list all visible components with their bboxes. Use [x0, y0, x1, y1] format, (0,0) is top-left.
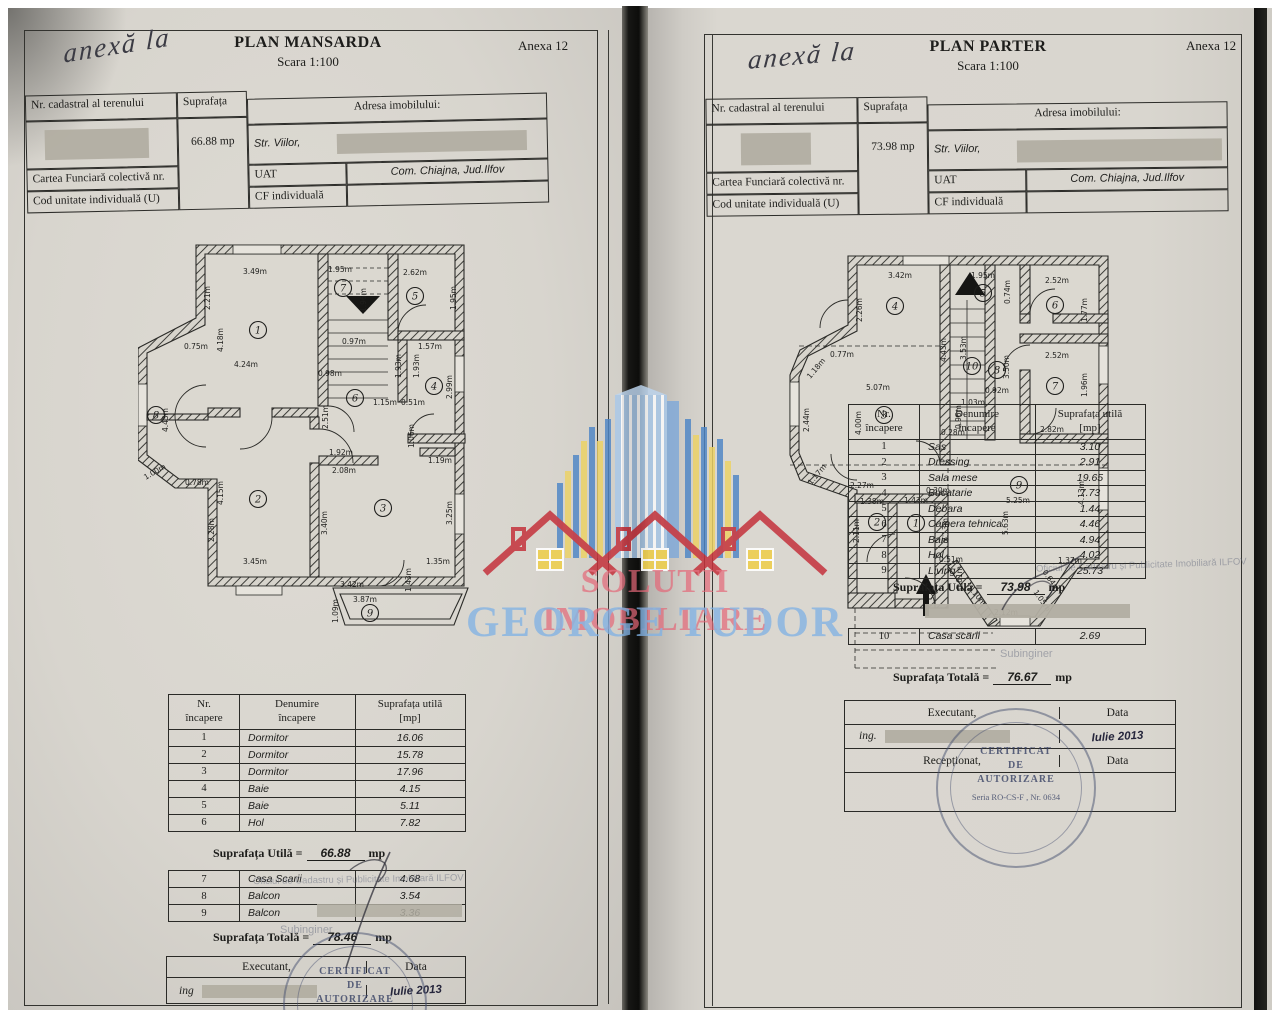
- dimension-label: 2.28m: [207, 518, 216, 542]
- page-title: PLAN MANSARDA: [168, 34, 448, 52]
- photo-seam: [622, 6, 648, 1010]
- table-row: 1Dormitor16.06: [169, 730, 465, 747]
- dimension-label: 4.43m: [939, 338, 948, 362]
- dimension-label: 0.77m: [830, 350, 854, 359]
- dimension-label: 1.93m: [394, 354, 403, 378]
- dimension-label: 1.77m: [1080, 298, 1089, 322]
- svg-text:4: 4: [891, 302, 898, 313]
- svg-text:8: 8: [994, 366, 1000, 377]
- dimension-label: 2.51m: [321, 405, 330, 429]
- cadastral-label: Nr. cadastral al terenului: [705, 97, 857, 125]
- dimension-label: 1.43m: [404, 568, 413, 592]
- svg-text:5: 5: [980, 289, 986, 300]
- dimension-label: 2.52m: [1045, 276, 1069, 285]
- dimension-label: 1.15m: [373, 398, 397, 407]
- adresa-value: Str. Viilor,: [928, 127, 1228, 170]
- page-parter: anexă la PLAN PARTER Scara 1:100 Anexa 1…: [648, 8, 1272, 1010]
- floor-plan-mansarda: 3.49m1.95m2.62m2.21m1.96m1.95m4.18m0.75m…: [138, 238, 478, 656]
- adresa-value: Str. Viilor,: [247, 119, 548, 165]
- adresa-label: Adresa imobilului:: [927, 101, 1227, 130]
- room-areas-table: Nr. încapere Denumire încapere Suprafața…: [168, 694, 466, 832]
- authorization-stamp: CERTIFICAT DE AUTORIZARE Seria RO-CS-F ,…: [936, 708, 1096, 868]
- dimension-label: 1.95m: [328, 265, 352, 274]
- dimension-label: 1.06m: [407, 424, 416, 448]
- dimension-label: 0.75m: [184, 342, 208, 351]
- table-row: 2Dormitor15.78: [169, 747, 465, 764]
- dimension-label: 1.95m: [449, 286, 458, 310]
- annex-label: Anexa 12: [518, 38, 568, 54]
- cf-colectiva-label: Cartea Funciară colectivă nr.: [706, 171, 858, 195]
- dimension-label: 3.42m: [888, 271, 912, 280]
- room-areas-table: Nr. încapere Denumire încapere Suprafața…: [848, 404, 1146, 579]
- dimension-label: 3.87m: [353, 595, 377, 604]
- dimension-label: 0.78m: [185, 478, 209, 487]
- dimension-label: 2.52m: [1045, 351, 1069, 360]
- table-row: 6Camera tehnica4.46: [849, 517, 1145, 533]
- table-row: 5Debara1.44: [849, 502, 1145, 518]
- suprafata-label: Suprafața: [177, 91, 248, 118]
- page-border-inner: [608, 30, 609, 1004]
- photo-edge-shadow: [1254, 8, 1267, 1010]
- dimension-label: 3.49m: [243, 267, 267, 276]
- suprafata-label: Suprafața: [857, 96, 927, 123]
- suprafata-utila-line: Suprafața Utilă =73.98mp: [893, 580, 1065, 595]
- scanned-floorplan-photo: anexă la PLAN MANSARDA Scara 1:100 Anexa…: [0, 0, 1280, 1024]
- table-row: 4Bucatarie7.73: [849, 486, 1145, 502]
- dimension-label: 2.26m: [855, 298, 864, 322]
- page-scale: Scara 1:100: [168, 54, 448, 70]
- dimension-label: 1.93m: [412, 354, 421, 378]
- cadastral-label: Nr. cadastral al terenului: [25, 92, 178, 121]
- room-rows: 1Dormitor16.062Dormitor15.783Dormitor17.…: [169, 730, 465, 831]
- page-title: PLAN PARTER: [848, 38, 1128, 56]
- dimension-label: 2.21m: [203, 286, 212, 310]
- table-row: 1Sas3.10: [849, 440, 1145, 456]
- dimension-label: 5.07m: [866, 383, 890, 392]
- dimension-label: 1.57m: [418, 342, 442, 351]
- svg-text:10: 10: [966, 362, 979, 373]
- table-row: 2Dressing2.91: [849, 455, 1145, 471]
- dimension-label: 3.25m: [445, 501, 454, 525]
- room-number: 9: [362, 605, 379, 622]
- suprafata-totala-line: Suprafața Totală =76.67mp: [893, 670, 1072, 685]
- table-row: 4Baie4.15: [169, 781, 465, 798]
- dimension-label: 0.51m: [401, 398, 425, 407]
- room-rows: 1Sas3.102Dressing2.913Sala mese19.654Buc…: [849, 440, 1145, 579]
- table-row: 7Baie4.94: [849, 533, 1145, 549]
- faint-subinginer: Subinginer: [1000, 648, 1053, 660]
- table-row: 10Casa scarii2.69: [849, 629, 1145, 644]
- table-row: 8Balcon3.54: [169, 888, 465, 905]
- cadastral-value-redacted: [706, 123, 858, 173]
- table-row: 3Sala mese19.65: [849, 471, 1145, 487]
- suprafata-utila-line: Suprafața Utilă =66.88mp: [213, 846, 385, 861]
- svg-text:6: 6: [352, 394, 359, 405]
- table-row: 5Baie5.11: [169, 798, 465, 815]
- dimension-label: 1.09m: [331, 599, 340, 623]
- cf-individuala-label: CF individuală: [928, 191, 1026, 214]
- dimension-label: 4.18m: [216, 328, 225, 352]
- annex-label: Anexa 12: [1186, 38, 1236, 54]
- svg-text:8: 8: [153, 411, 159, 422]
- dimension-label: 3.45m: [243, 557, 267, 566]
- dimension-label: 0.74m: [1003, 280, 1012, 304]
- dimension-label: 2.44m: [802, 408, 811, 432]
- cf-colectiva-label: Cartea Funciară colectivă nr.: [26, 166, 178, 191]
- property-info-table: Nr. cadastral al terenului Cartea Funcia…: [25, 85, 549, 214]
- dimension-label: 3.42m: [340, 580, 364, 589]
- cf-individuala-value: [347, 181, 549, 207]
- dimension-label: 0.92m: [985, 386, 1009, 395]
- cf-individuala-label: CF individuală: [249, 185, 347, 209]
- dimension-label: 1.96m: [359, 288, 368, 312]
- table-row: 3Dormitor17.96: [169, 764, 465, 781]
- dimension-label: 2.62m: [403, 268, 427, 277]
- dimension-label: 1.35m: [426, 557, 450, 566]
- dimension-label: 3.53m: [959, 336, 968, 360]
- suprafata-value: 66.88 mp: [177, 117, 249, 210]
- cod-unitate-label: Cod unitate individuală (U): [706, 193, 858, 217]
- svg-text:9: 9: [367, 609, 374, 620]
- page-scale: Scara 1:100: [848, 58, 1128, 74]
- dimension-label: 0.98m: [318, 369, 342, 378]
- svg-text:7: 7: [1052, 382, 1059, 393]
- dimension-label: 4.15m: [216, 481, 225, 505]
- cf-individuala-value: [1026, 189, 1228, 213]
- uat-value: Com. Chiajna, Jud.Ilfov: [1026, 167, 1228, 191]
- dimension-label: 4.24m: [234, 360, 258, 369]
- svg-text:2: 2: [254, 495, 261, 506]
- dimension-label: 2.08m: [332, 466, 356, 475]
- uat-label: UAT: [928, 169, 1026, 192]
- dimension-label: 0.97m: [342, 337, 366, 346]
- dimension-label: 2.99m: [445, 375, 454, 399]
- dimension-label: 3.40m: [320, 511, 329, 535]
- property-info-table: Nr. cadastral al terenului Cartea Funcia…: [705, 93, 1228, 216]
- dimension-label: 1.96m: [1080, 373, 1089, 397]
- svg-text:5: 5: [412, 292, 418, 303]
- svg-text:4: 4: [430, 382, 437, 393]
- suprafata-value: 73.98 mp: [858, 122, 929, 215]
- uat-label: UAT: [248, 163, 346, 187]
- svg-text:3: 3: [380, 504, 386, 515]
- svg-text:7: 7: [340, 284, 347, 295]
- extra-rooms-table: 10Casa scarii2.69: [848, 628, 1146, 645]
- cod-unitate-label: Cod unitate individuală (U): [27, 188, 179, 213]
- svg-text:6: 6: [1052, 301, 1059, 312]
- dimension-label: 1.92m: [329, 448, 353, 457]
- dimension-label: 1.19m: [428, 456, 452, 465]
- table-row: 6Hol7.82: [169, 815, 465, 831]
- page-mansarda: anexă la PLAN MANSARDA Scara 1:100 Anexa…: [8, 8, 622, 1010]
- redacted-note: [925, 604, 1130, 618]
- cadastral-value-redacted: [25, 118, 178, 169]
- dimension-label: 1.95m: [971, 271, 995, 280]
- svg-text:1: 1: [255, 326, 261, 337]
